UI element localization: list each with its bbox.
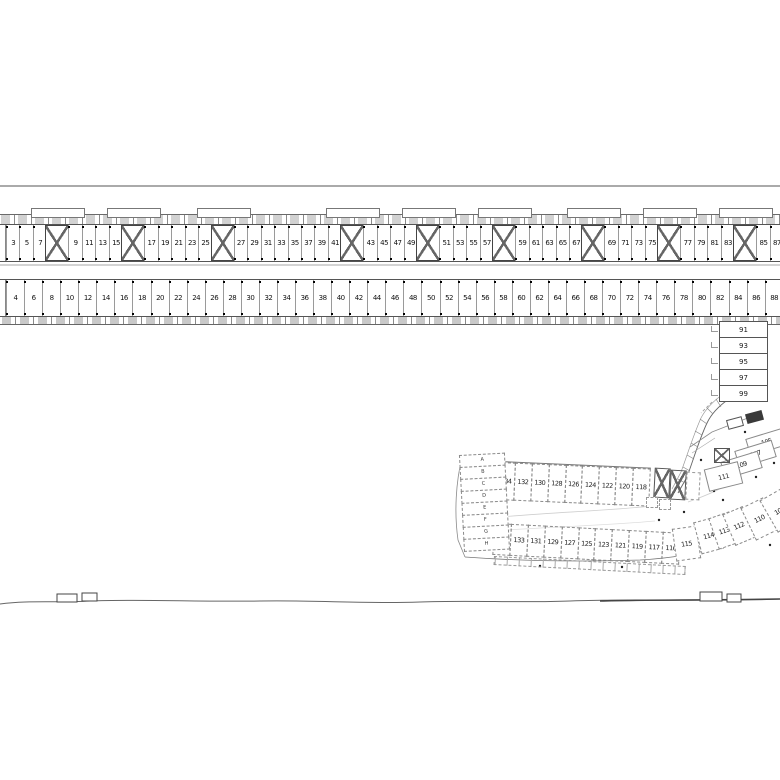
unit-cell (733, 225, 757, 261)
unit-cell: 67 (569, 225, 582, 261)
unit-number: 79 (697, 239, 705, 247)
unit-cell: 23 (185, 225, 198, 261)
unit-number: 77 (684, 239, 692, 247)
unit-stack-91-99: 91 93 95 97 99 (719, 322, 768, 402)
unit-cell: 32 (259, 280, 277, 316)
unit-cell: 80 (692, 280, 710, 316)
unit-cell: 75 (645, 225, 658, 261)
unit-number: 14 (102, 294, 110, 302)
unit-number: 88 (770, 294, 778, 302)
unit-number: 80 (698, 294, 706, 302)
unit-number: 49 (407, 239, 415, 247)
unit-cell (492, 225, 516, 261)
unit-cell: 51 (439, 225, 452, 261)
unit-number: 40 (337, 294, 345, 302)
unit-number: 38 (319, 294, 327, 302)
unit-cell: 71 (618, 225, 631, 261)
unit-cell: 50 (421, 280, 439, 316)
unit-number: 48 (409, 294, 417, 302)
unit-number: 36 (301, 294, 309, 302)
unit-number: 110 (753, 513, 766, 525)
service-box (646, 497, 658, 508)
unit-number: 46 (391, 294, 399, 302)
unit-number: 82 (716, 294, 724, 302)
unit-number: 75 (648, 239, 656, 247)
unit-number: 91 (739, 326, 748, 334)
unit-cell (45, 225, 69, 261)
lower-row-cells: 4 6 8 10 12 14 (0, 279, 780, 317)
unit-number: 5 (25, 239, 29, 247)
unit-cell: 58 (494, 280, 512, 316)
unit-cell: 78 (674, 280, 692, 316)
unit-number: 120 (619, 482, 630, 490)
unit-cell: 37 (301, 225, 314, 261)
unit-number: 72 (626, 294, 634, 302)
site-outline (0, 0, 780, 780)
unit-cell: 69 (604, 225, 617, 261)
unit-number: 73 (635, 239, 643, 247)
unit-number: 7 (38, 239, 42, 247)
unit-cell: 46 (385, 280, 403, 316)
unit-number: 61 (532, 239, 540, 247)
unit-number: 67 (572, 239, 580, 247)
unit-cell: 85 (756, 225, 769, 261)
unit-cell: 63 (542, 225, 555, 261)
unit-cell: 87 (770, 225, 780, 261)
unit-number: 13 (99, 239, 107, 247)
unit-number: 125 (581, 540, 592, 549)
unit-number: 126 (568, 480, 579, 488)
unit-number: 26 (210, 294, 218, 302)
unit-cell: 47 (390, 225, 403, 261)
unit-cell: 54 (458, 280, 476, 316)
unit-cell: 22 (169, 280, 187, 316)
unit-number: 27 (237, 239, 245, 247)
unit-cell: 86 (747, 280, 765, 316)
unit-number: 19 (161, 239, 169, 247)
unit-number: 56 (481, 294, 489, 302)
bay-column: A B C D E F G (459, 454, 510, 552)
unit-cell: 31 (261, 225, 274, 261)
unit-number: 54 (463, 294, 471, 302)
upper-row-cells: 3 5 7 9 11 (0, 224, 780, 262)
unit-number: 76 (662, 294, 670, 302)
unit-number: 124 (585, 481, 596, 489)
service-box (659, 499, 671, 510)
unit-number: 69 (608, 239, 616, 247)
unit-number: 3 (11, 239, 15, 247)
unit-number: 131 (530, 537, 541, 546)
unit-number: 132 (517, 478, 528, 486)
unit-cell: 74 (638, 280, 656, 316)
unit-number: 128 (551, 479, 562, 487)
unit-cell: 70 (602, 280, 620, 316)
unit-cell (211, 225, 235, 261)
unit-cell: 21 (171, 225, 184, 261)
bay-letter: G (484, 529, 488, 535)
unit-number: 10 (66, 294, 74, 302)
unit-cell: 66 (566, 280, 584, 316)
unit-cell: 6 (24, 280, 42, 316)
unit-cell: 39 (314, 225, 327, 261)
unit-number: 83 (724, 239, 732, 247)
unit-cell: 43 (363, 225, 376, 261)
unit-number: 99 (739, 390, 748, 398)
unit-cell: 81 (707, 225, 720, 261)
unit-cell: 34 (277, 280, 295, 316)
unit-cell: 12 (78, 280, 96, 316)
unit-number: 22 (174, 294, 182, 302)
unit-number: 81 (711, 239, 719, 247)
unit-cell: 5 (19, 225, 32, 261)
unit-number: 119 (631, 542, 642, 551)
unit-cell: 97 (719, 369, 768, 386)
unit-number: 51 (443, 239, 451, 247)
unit-number: 20 (156, 294, 164, 302)
bay-letter: B (481, 469, 485, 475)
unit-cell: 7 (33, 225, 46, 261)
unit-number: 108 (773, 504, 780, 516)
unit-cell: 25 (198, 225, 211, 261)
unit-cell: 73 (631, 225, 644, 261)
unit-cell: 64 (548, 280, 566, 316)
unit-cell: 42 (349, 280, 367, 316)
unit-cell: 93 (719, 337, 768, 354)
unit-number: 4 (14, 294, 18, 302)
unit-number: 60 (517, 294, 525, 302)
unit-number: 24 (192, 294, 200, 302)
unit-number: 59 (518, 239, 526, 247)
unit-cell: 61 (529, 225, 542, 261)
unit-number: 41 (331, 239, 339, 247)
service-box (685, 472, 700, 501)
unit-cell: 57 (480, 225, 493, 261)
service-box (726, 416, 744, 430)
unit-number: 23 (188, 239, 196, 247)
unit-cell (416, 225, 440, 261)
unit-cell: 29 (247, 225, 260, 261)
unit-number: 130 (534, 479, 545, 487)
unit-number: 44 (373, 294, 381, 302)
unit-cell: 36 (295, 280, 313, 316)
unit-number: 29 (250, 239, 258, 247)
unit-cell: 14 (96, 280, 114, 316)
unit-number: 70 (608, 294, 616, 302)
unit-number: 62 (535, 294, 543, 302)
unit-cell: 76 (656, 280, 674, 316)
unit-cell: 28 (223, 280, 241, 316)
unit-number: 18 (138, 294, 146, 302)
unit-number: 121 (615, 541, 626, 550)
bay-letter: A (480, 457, 484, 463)
terrace-upper-row: 134 132 130 128 126 124 122 (497, 461, 651, 507)
unit-cell (581, 225, 605, 261)
unit-cell: 111 (704, 461, 744, 492)
unit-number: 43 (367, 239, 375, 247)
unit-number: 133 (513, 536, 524, 545)
unit-cell: 84 (729, 280, 747, 316)
unit-cell: 4 (6, 280, 24, 316)
unit-number: 35 (291, 239, 299, 247)
unit-cell: 91 (719, 321, 768, 338)
unit-cell: 52 (440, 280, 458, 316)
filled-structure (745, 410, 764, 424)
unit-number: 28 (228, 294, 236, 302)
unit-number: 84 (734, 294, 742, 302)
unit-number: 129 (547, 538, 558, 547)
unit-number: 9 (74, 239, 78, 247)
unit-cell: 59 (515, 225, 528, 261)
unit-number: 65 (559, 239, 567, 247)
unit-cell: 30 (241, 280, 259, 316)
unit-cell: 20 (151, 280, 169, 316)
unit-cell: 41 (328, 225, 341, 261)
bay-letter: C (482, 481, 486, 487)
bay-letter: F (484, 517, 487, 523)
unit-number: 47 (394, 239, 402, 247)
unit-number: 64 (553, 294, 561, 302)
unit-cell: 26 (205, 280, 223, 316)
unit-number: 87 (773, 239, 780, 247)
unit-number: 63 (545, 239, 553, 247)
unit-number: 112 (732, 520, 745, 532)
unit-number: 85 (759, 239, 767, 247)
unit-number: 32 (264, 294, 272, 302)
unit-cell: 88 (765, 280, 780, 316)
unit-number: 115 (681, 539, 693, 548)
unit-cell: 68 (584, 280, 602, 316)
unit-cell: 49 (404, 225, 417, 261)
unit-number: 74 (644, 294, 652, 302)
unit-cell: 24 (187, 280, 205, 316)
unit-number: 52 (445, 294, 453, 302)
unit-number: 45 (380, 239, 388, 247)
unit-number: 122 (602, 482, 613, 490)
unit-number: 71 (621, 239, 629, 247)
lower-row-label-band (0, 317, 780, 325)
unit-number: 86 (752, 294, 760, 302)
lower-unit-row: 4 6 8 10 12 14 (0, 279, 780, 325)
unit-number: 25 (201, 239, 209, 247)
bay-letter: E (483, 505, 486, 511)
unit-cell: 83 (721, 225, 734, 261)
unit-number: 31 (264, 239, 272, 247)
unit-cell: 65 (556, 225, 569, 261)
unit-number: 118 (635, 483, 646, 491)
unit-cell: 45 (377, 225, 390, 261)
unit-cell: 10 (60, 280, 78, 316)
unit-cell: 60 (512, 280, 530, 316)
unit-cell: 8 (42, 280, 60, 316)
unit-number: 123 (598, 540, 609, 549)
unit-cell: 62 (530, 280, 548, 316)
unit-cell: 82 (710, 280, 728, 316)
unit-number: 12 (84, 294, 92, 302)
unit-number: 21 (174, 239, 182, 247)
unit-cell (121, 225, 145, 261)
unit-cell: 48 (403, 280, 421, 316)
unit-cell: 11 (82, 225, 95, 261)
stair-cross-icon (669, 470, 687, 501)
unit-number: 66 (572, 294, 580, 302)
unit-number: 127 (564, 539, 575, 548)
unit-cell: 19 (158, 225, 171, 261)
unit-number: 16 (120, 294, 128, 302)
unit-cell: 99 (719, 385, 768, 402)
unit-cell: 44 (367, 280, 385, 316)
unit-cell: 13 (95, 225, 108, 261)
unit-number: 68 (590, 294, 598, 302)
unit-number: 50 (427, 294, 435, 302)
unit-cell (657, 225, 681, 261)
unit-cell: 77 (680, 225, 693, 261)
unit-cell: 18 (132, 280, 150, 316)
bay-letter: D (482, 493, 486, 499)
unit-number: 97 (739, 374, 748, 382)
unit-number: 37 (304, 239, 312, 247)
unit-number: 39 (318, 239, 326, 247)
unit-cell: 15 (109, 225, 122, 261)
floor-plan-canvas: 3 5 7 9 11 (0, 0, 780, 780)
unit-number: 33 (277, 239, 285, 247)
unit-number: 34 (283, 294, 291, 302)
unit-number: 93 (739, 342, 748, 350)
unit-number: 8 (50, 294, 54, 302)
bay-letter: H (485, 541, 489, 547)
unit-cell: 35 (288, 225, 301, 261)
unit-number: 11 (85, 239, 93, 247)
unit-number: 30 (246, 294, 254, 302)
unit-number: 57 (483, 239, 491, 247)
unit-number: 17 (148, 239, 156, 247)
bay-cell: H (463, 536, 510, 551)
unit-cell: 79 (694, 225, 707, 261)
unit-cell: 27 (234, 225, 247, 261)
unit-number: 58 (499, 294, 507, 302)
unit-cell: 17 (144, 225, 157, 261)
unit-number: 53 (456, 239, 464, 247)
unit-cell: 72 (620, 280, 638, 316)
unit-cell: 40 (331, 280, 349, 316)
unit-cell: 3 (6, 225, 19, 261)
unit-number: 42 (355, 294, 363, 302)
unit-number: 6 (32, 294, 36, 302)
unit-cell: 16 (114, 280, 132, 316)
unit-cell (340, 225, 364, 261)
unit-cell: 53 (453, 225, 466, 261)
unit-number: 78 (680, 294, 688, 302)
unit-number: 15 (112, 239, 120, 247)
unit-cell: 9 (68, 225, 81, 261)
upper-unit-row: 3 5 7 9 11 (0, 214, 780, 262)
unit-cell: 55 (466, 225, 479, 261)
unit-cell: 95 (719, 353, 768, 370)
unit-cell: 56 (476, 280, 494, 316)
unit-number: 111 (717, 471, 730, 481)
stair-cross-icon (714, 448, 730, 463)
unit-number: 55 (469, 239, 477, 247)
stair-cross-icon (653, 468, 671, 499)
unit-cell: 38 (313, 280, 331, 316)
unit-number: 95 (739, 358, 748, 366)
unit-cell: 33 (274, 225, 287, 261)
unit-number: 117 (648, 543, 659, 552)
